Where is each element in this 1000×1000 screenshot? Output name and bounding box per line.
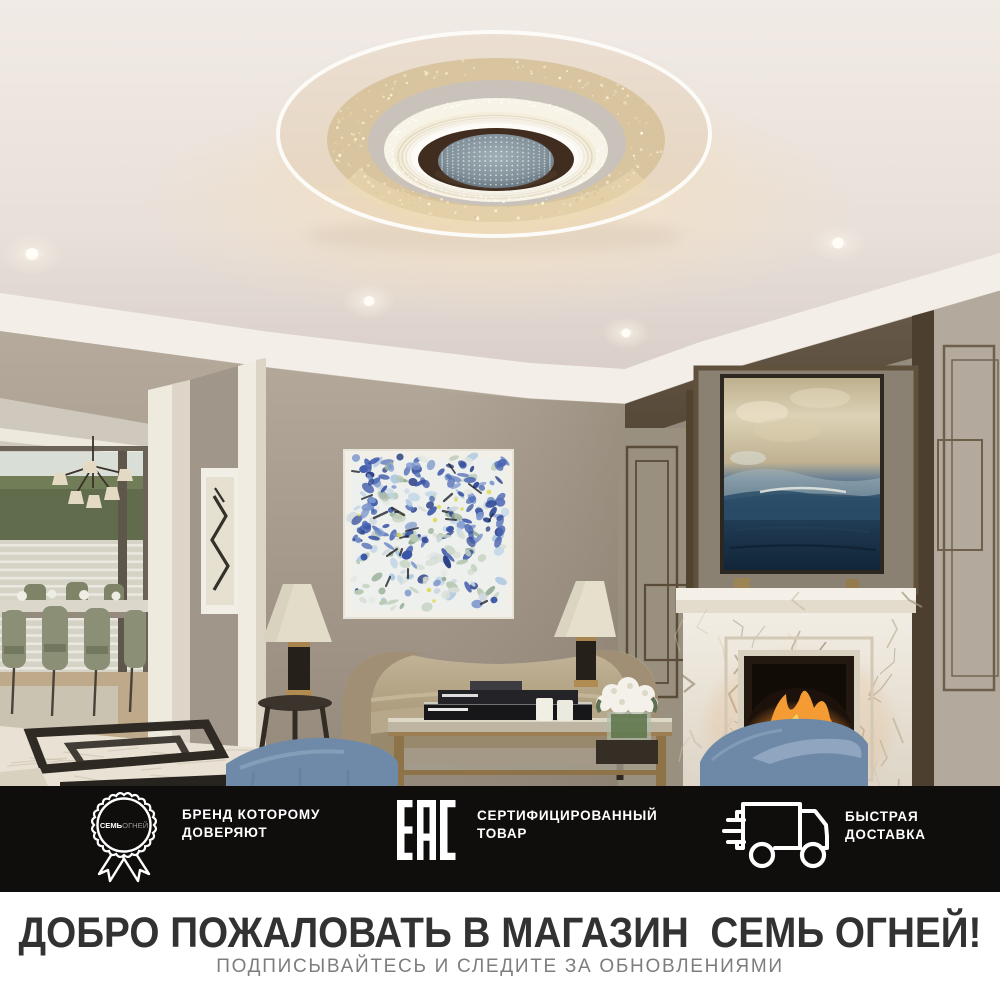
svg-text:СЕМЬОГНЕЙ: СЕМЬОГНЕЙ [100, 821, 148, 830]
